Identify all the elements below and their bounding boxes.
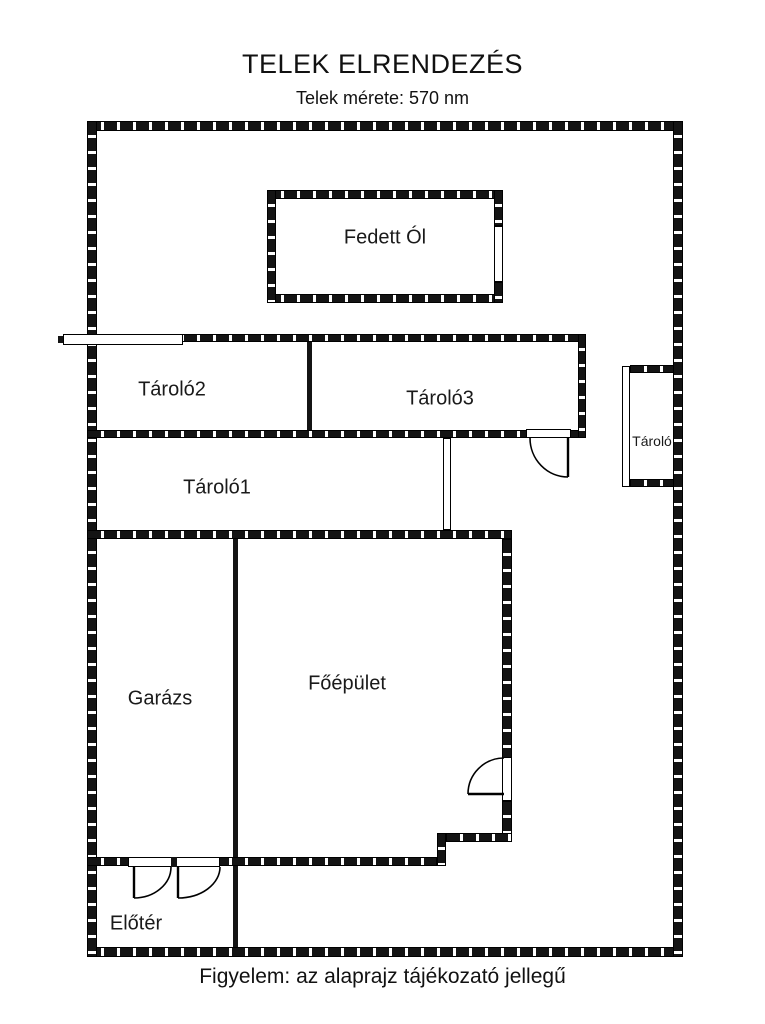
main-building-door-opening — [502, 757, 512, 801]
tarolo-small-bottom-wall — [630, 479, 674, 487]
double-door-left-arc — [134, 867, 171, 898]
fedett-ol-right-wall-lower — [494, 282, 503, 303]
fedett-ol-left-wall — [267, 190, 276, 303]
fedett-ol-top-wall — [267, 190, 503, 199]
fedett-ol-bottom-wall — [267, 294, 503, 303]
tarolo-small-left-wall — [622, 366, 630, 487]
room-label-tarolo1: Tároló1 — [183, 477, 251, 500]
main-building-step-wall — [437, 833, 446, 866]
double-door-right-arc — [178, 867, 220, 898]
fedett-ol-right-wall-upper — [494, 190, 503, 226]
disclaimer-note: Figyelem: az alaprajz tájékozató jellegű — [0, 965, 765, 989]
door-swing-overlay — [0, 0, 765, 1024]
storage-block-divider-wall — [307, 342, 312, 430]
main-building-right-wall-upper — [502, 539, 512, 758]
double-door-center-post — [171, 857, 177, 867]
room-label-garazs: Garázs — [128, 688, 192, 711]
main-building-bottom-wall-right — [446, 833, 512, 842]
storage-block-bottom-wall — [87, 430, 586, 438]
tarolo3-door-frame — [526, 429, 571, 438]
page-title: TELEK ELRENDEZÉS — [0, 49, 765, 80]
tarolo1-right-wall — [443, 438, 451, 530]
fence-left-wall — [87, 121, 97, 957]
room-label-tarolo-small: Tároló — [632, 433, 672, 449]
tarolo-small-top-wall — [630, 365, 674, 373]
room-label-eloter: Előtér — [110, 913, 162, 936]
main-building-top-wall — [87, 530, 512, 539]
fence-top-wall — [87, 121, 683, 131]
room-label-fedett-ol: Fedett Ól — [344, 227, 426, 250]
room-label-tarolo3: Tároló3 — [406, 388, 474, 411]
fedett-ol-window-opening — [494, 226, 503, 282]
room-label-tarolo2: Tároló2 — [138, 379, 206, 402]
gate-bar — [63, 334, 183, 345]
tarolo3-door-arc — [530, 438, 568, 477]
room-label-foepulet: Főépület — [308, 673, 386, 696]
fence-bottom-wall — [87, 947, 683, 957]
floor-plan: TELEK ELRENDEZÉS Telek mérete: 570 nm — [0, 0, 765, 1024]
eloter-right-wall — [233, 866, 238, 947]
garage-divider-wall — [233, 539, 238, 857]
fence-right-wall — [673, 121, 683, 957]
foepulet-door-arc — [468, 758, 504, 794]
plot-size-subtitle: Telek mérete: 570 nm — [0, 88, 765, 109]
storage-block-right-wall — [578, 334, 586, 438]
